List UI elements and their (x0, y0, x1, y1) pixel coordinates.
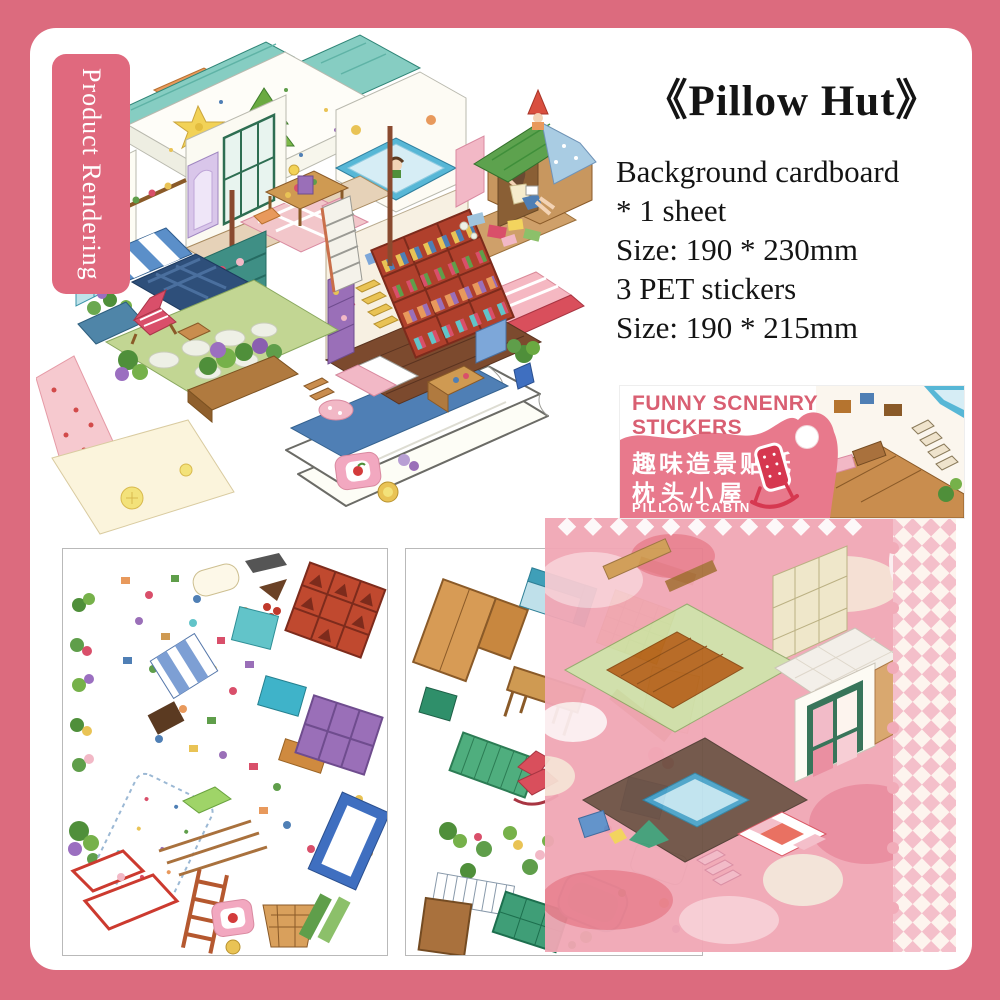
product-title: 《Pillow Hut》 (616, 66, 968, 128)
spec-line: Size: 190 * 230mm (616, 230, 968, 269)
pastry-sticker (226, 940, 240, 954)
spec-line: Background cardboard (616, 152, 968, 191)
striped-frame-sticker (150, 634, 217, 699)
plate-sticker (211, 898, 255, 937)
green-box-sticker (419, 687, 457, 721)
blue-frame-sticker (308, 792, 387, 890)
front-steps (304, 378, 334, 400)
brand-line-2: STICKERS (632, 416, 818, 440)
brown-cabinet-sticker (419, 898, 472, 955)
wardrobe-sticker (413, 579, 528, 692)
spec-line: Size: 190 * 215mm (616, 308, 968, 347)
gnome-doll (528, 90, 548, 130)
spec-line: 3 PET stickers (616, 269, 968, 308)
package-label: FUNNY SCNENRY STICKERS 趣味造景贴纸 枕头小屋 PILLO… (620, 386, 964, 518)
dark-plank-sticker (148, 701, 185, 735)
product-specs: Background cardboard * 1 sheet Size: 190… (616, 152, 968, 347)
pillow-sticker (190, 561, 241, 599)
teal-cabinet-sticker (258, 676, 307, 716)
red-shelf-sticker (285, 563, 385, 658)
product-rendering-ribbon: Product Rendering (52, 54, 130, 294)
diamond-check-strip (893, 518, 956, 952)
product-image-canvas: Product Rendering 《Pillow Hut》 Backgroun… (0, 0, 1000, 1000)
ribbon-label: Product Rendering (76, 68, 106, 281)
package-brand: FUNNY SCNENRY STICKERS (632, 392, 818, 440)
package-english-subtitle: PILLOW CABIN (632, 500, 751, 515)
pet-sticker-sheet-1 (62, 548, 388, 956)
product-info: 《Pillow Hut》 Background cardboard * 1 sh… (616, 66, 968, 347)
plant-stickers-2 (439, 822, 554, 879)
rocking-chair-icon (748, 438, 800, 510)
arch-door (188, 152, 218, 238)
plant-stickers (68, 593, 99, 865)
pink-background-cardboard (545, 518, 956, 952)
pink-dot-rug (319, 400, 353, 420)
spec-line: * 1 sheet (616, 191, 968, 230)
garden (78, 280, 338, 422)
sheet1-art (63, 549, 387, 955)
brand-line-1: FUNNY SCNENRY (632, 392, 818, 416)
